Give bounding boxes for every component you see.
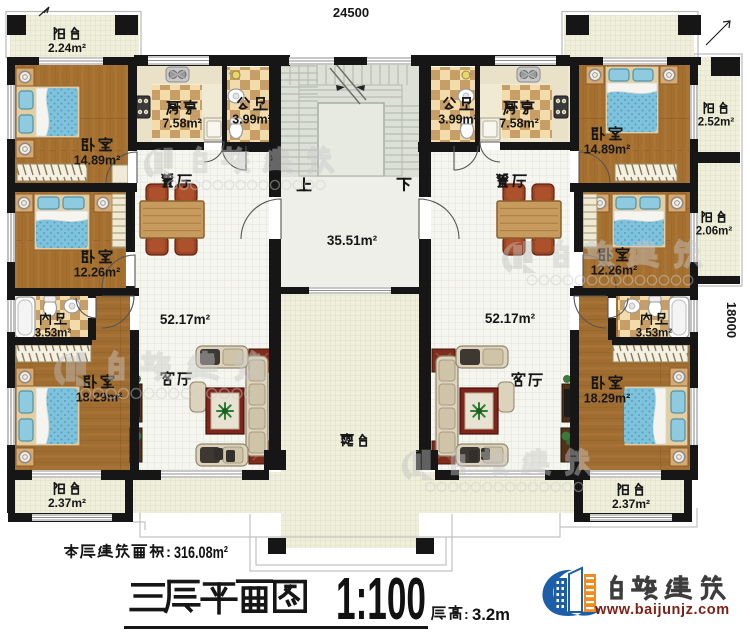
svg-text:35.51m²: 35.51m² [327,233,378,248]
svg-text:2.37m²: 2.37m² [48,496,86,510]
svg-text:52.17m²: 52.17m² [160,312,211,327]
svg-text:18.29m²: 18.29m² [584,392,631,406]
svg-text:52.17m²: 52.17m² [485,311,536,326]
svg-text:3.99m²: 3.99m² [232,113,272,127]
svg-text:2.37m²: 2.37m² [612,497,650,511]
svg-text:316.08m²: 316.08m² [174,543,228,562]
svg-text:3.2m: 3.2m [472,605,510,624]
svg-text:2.52m²: 2.52m² [698,117,735,129]
svg-text:2.24m²: 2.24m² [48,41,86,55]
svg-text:14.89m²: 14.89m² [74,154,121,168]
svg-text::: : [166,544,171,561]
svg-text:7.58m²: 7.58m² [499,117,539,131]
svg-text:1:100: 1:100 [336,566,426,632]
svg-text:24500: 24500 [333,5,369,20]
svg-text:14.89m²: 14.89m² [584,143,631,157]
svg-text:3.53m²: 3.53m² [35,328,72,340]
svg-text::: : [464,606,469,622]
svg-text:www.baijunjz.com: www.baijunjz.com [594,602,730,618]
svg-text:7.58m²: 7.58m² [162,117,202,131]
svg-text:12.26m²: 12.26m² [74,266,121,280]
svg-text:3.53m²: 3.53m² [636,328,673,340]
svg-text:18000: 18000 [724,302,739,338]
svg-text:3.99m²: 3.99m² [438,113,478,127]
svg-text:2.06m²: 2.06m² [696,226,733,238]
